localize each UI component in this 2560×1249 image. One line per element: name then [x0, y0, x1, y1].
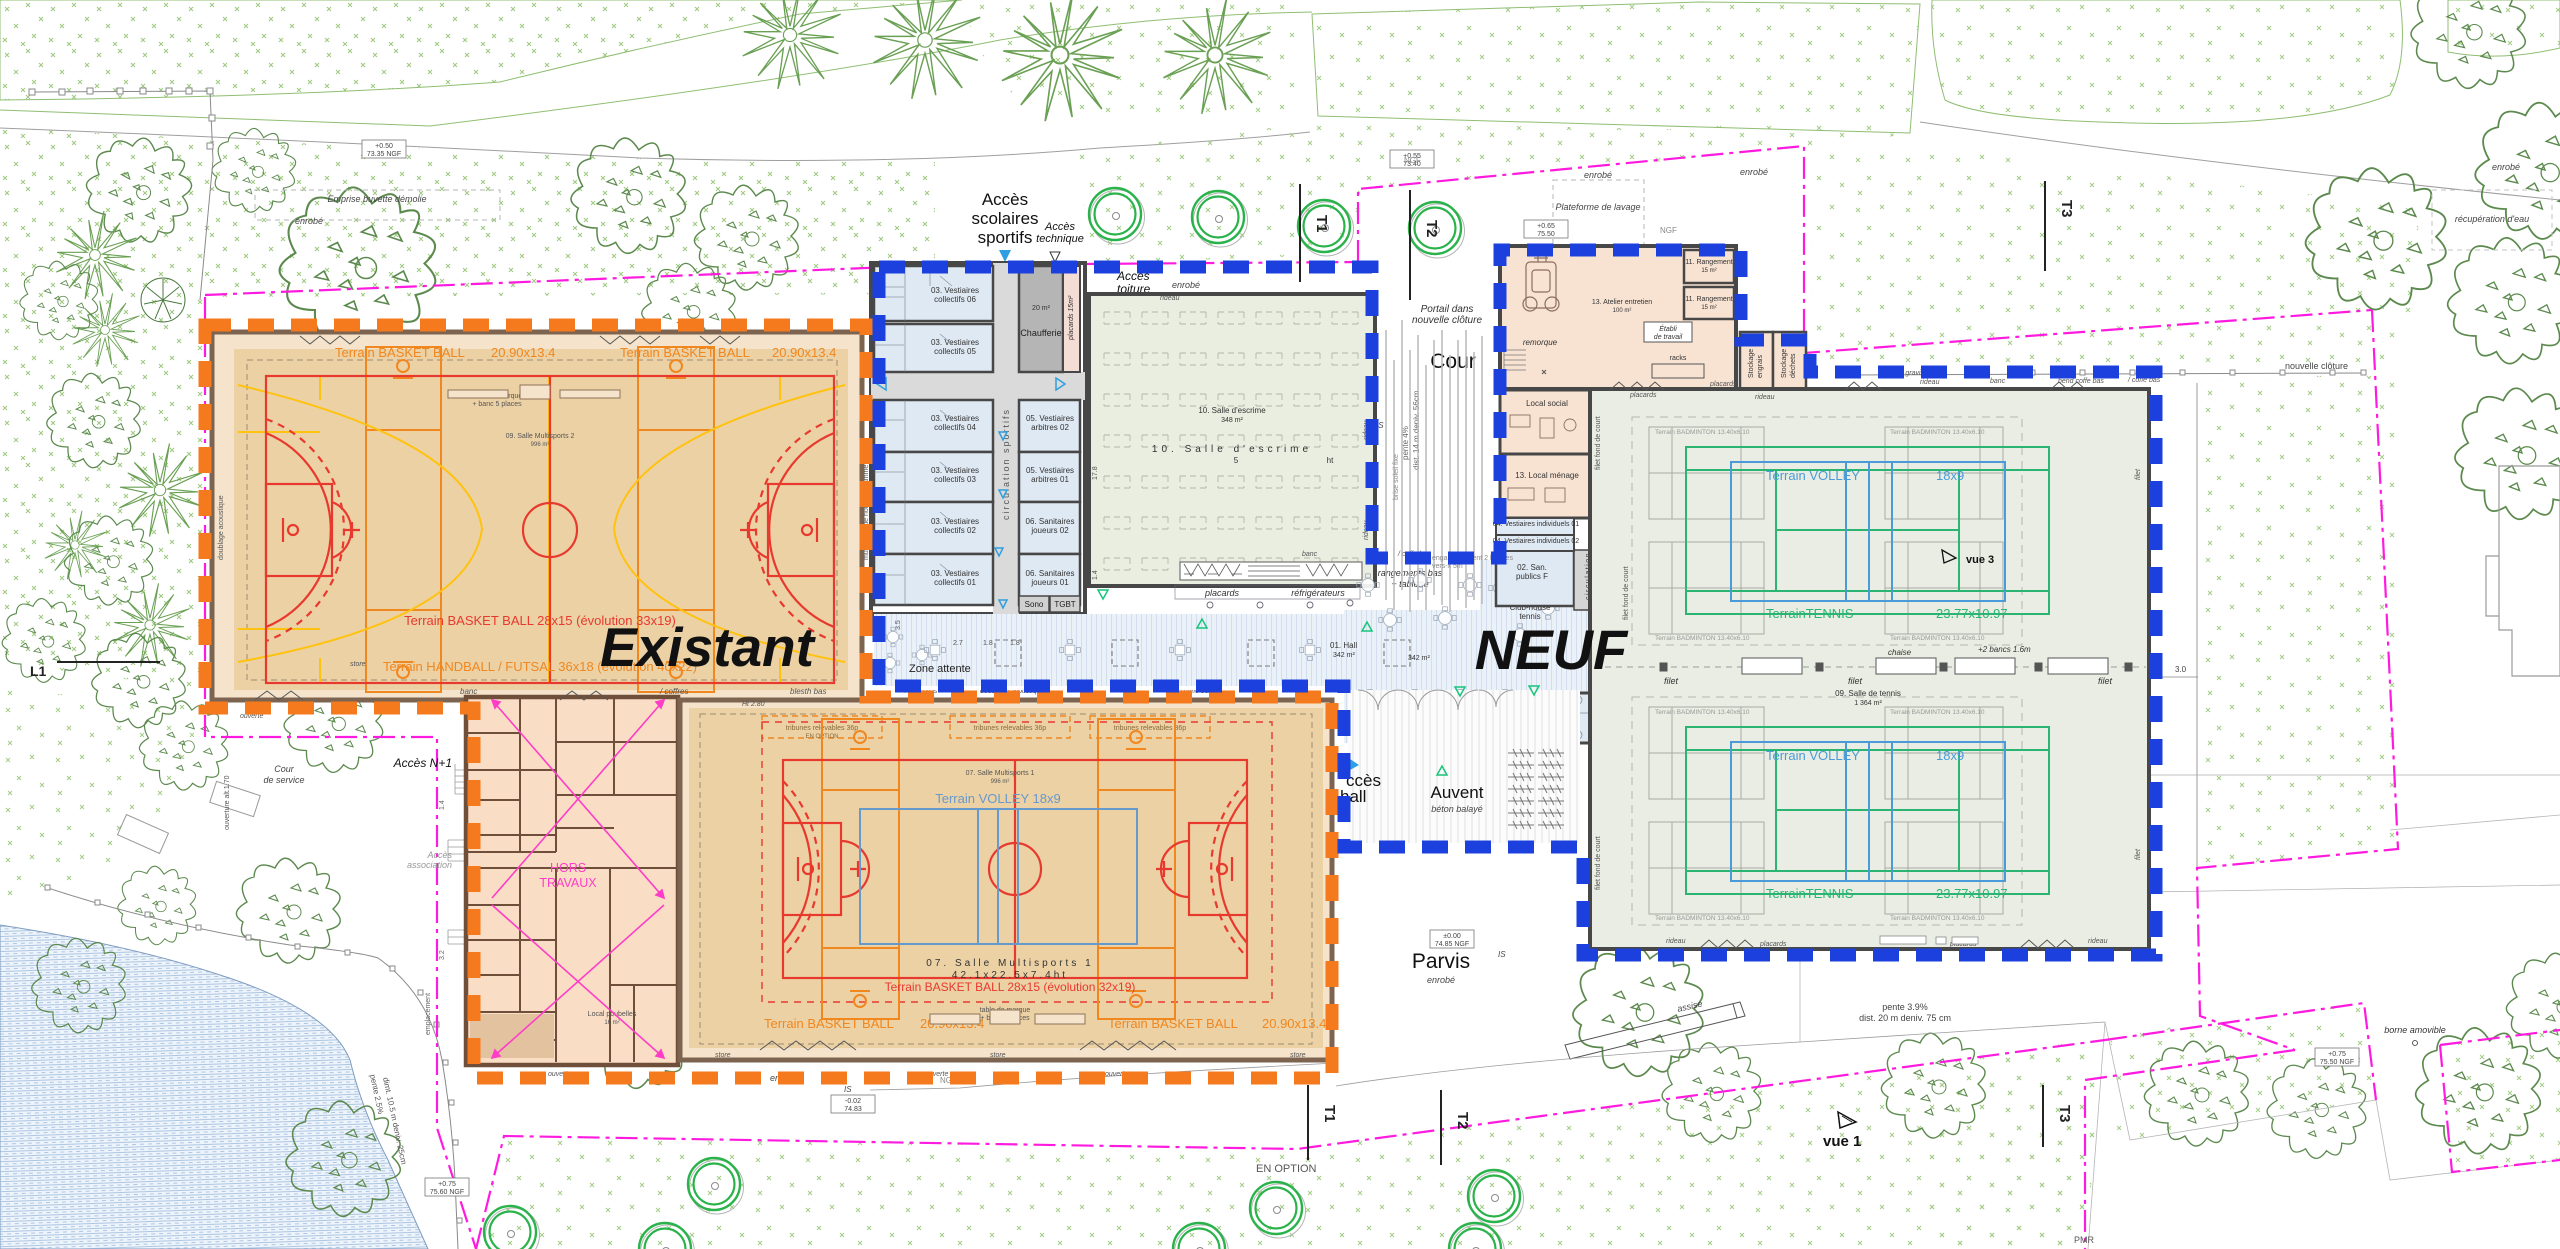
- svg-text:3.2: 3.2: [439, 950, 446, 960]
- svg-text:996 m²: 996 m²: [991, 779, 1010, 785]
- svg-text:PMR: PMR: [2074, 1235, 2095, 1245]
- svg-text:de travail: de travail: [1654, 334, 1683, 341]
- svg-text:Accès N+1: Accès N+1: [393, 756, 452, 770]
- svg-text:HORS: HORS: [550, 861, 586, 875]
- svg-text:17.8: 17.8: [1092, 466, 1099, 480]
- svg-text:enrobé: enrobé: [1740, 167, 1768, 177]
- svg-text:03. Vestiaires: 03. Vestiaires: [931, 517, 979, 526]
- svg-text:récupération d'eau: récupération d'eau: [2455, 214, 2529, 224]
- svg-text:74.85 NGF: 74.85 NGF: [1435, 941, 1469, 948]
- svg-text:TerrainTENNIS: TerrainTENNIS: [1766, 606, 1854, 621]
- svg-text:NGF: NGF: [1660, 226, 1677, 235]
- svg-text:+0.65: +0.65: [1537, 223, 1555, 230]
- svg-text:Terrain BADMINTON 13.40x6.10: Terrain BADMINTON 13.40x6.10: [1890, 429, 1985, 436]
- svg-text:T1: T1: [1313, 215, 1330, 233]
- svg-text:banc: banc: [460, 687, 477, 696]
- svg-text:996 m²: 996 m²: [531, 442, 550, 448]
- svg-text:+0.75: +0.75: [438, 1181, 456, 1188]
- svg-text:Terrain BADMINTON 13.40x6.10: Terrain BADMINTON 13.40x6.10: [1655, 709, 1750, 716]
- svg-text:18x9: 18x9: [1936, 748, 1964, 763]
- svg-text:filet: filet: [2098, 676, 2113, 686]
- svg-text:Terrain BADMINTON 13.40x6.10: Terrain BADMINTON 13.40x6.10: [1655, 915, 1750, 922]
- svg-text:15 m²: 15 m²: [1701, 268, 1716, 274]
- svg-text:20.90x13.4: 20.90x13.4: [1262, 1016, 1326, 1031]
- svg-text:Accès: Accès: [1044, 221, 1075, 233]
- svg-text:Terrain BADMINTON 13.40x6.10: Terrain BADMINTON 13.40x6.10: [1890, 709, 1985, 716]
- svg-text:enrobé: enrobé: [1427, 975, 1455, 985]
- svg-text:15 m²: 15 m²: [1701, 305, 1716, 311]
- svg-text:75.50 NGF: 75.50 NGF: [2320, 1059, 2354, 1066]
- svg-text:09. Salle Multisports 2: 09. Salle Multisports 2: [506, 433, 575, 440]
- svg-text:75.60 NGF: 75.60 NGF: [430, 1189, 464, 1196]
- svg-text:banc: banc: [1990, 378, 2006, 385]
- svg-text:Stockage: Stockage: [1748, 349, 1755, 378]
- svg-text:1 364 m²: 1 364 m²: [1854, 700, 1882, 707]
- svg-text:rideau: rideau: [2088, 938, 2108, 945]
- svg-text:store: store: [1290, 1052, 1306, 1059]
- svg-text:doublage acoustique: doublage acoustique: [218, 495, 225, 560]
- svg-text:bend coffe bas: bend coffe bas: [2058, 378, 2104, 385]
- svg-text:store: store: [990, 1052, 1006, 1059]
- svg-text:06. Sanitaires: 06. Sanitaires: [1026, 569, 1075, 578]
- svg-text:placards: placards: [1629, 392, 1657, 399]
- svg-text:±0.00: ±0.00: [1443, 933, 1461, 940]
- svg-text:3.0: 3.0: [2175, 665, 2187, 674]
- svg-text:/ coffres: / coffres: [659, 687, 688, 696]
- svg-text:Local social: Local social: [1526, 399, 1568, 408]
- svg-text:1.8: 1.8: [983, 640, 993, 647]
- svg-text:borne amovible: borne amovible: [2384, 1025, 2446, 1035]
- svg-text:-0.02: -0.02: [845, 1098, 861, 1105]
- svg-text:rideau: rideau: [1920, 379, 1940, 386]
- svg-text:Terrain BASKET BALL: Terrain BASKET BALL: [620, 345, 750, 360]
- svg-text:filet: filet: [2135, 468, 2142, 480]
- svg-text:Terrain BADMINTON 13.40x6.10: Terrain BADMINTON 13.40x6.10: [1890, 915, 1985, 922]
- svg-text:collectifs 01: collectifs 01: [934, 578, 976, 587]
- svg-text:filet: filet: [1664, 676, 1679, 686]
- svg-text:ouverture alt.1.70: ouverture alt.1.70: [224, 775, 231, 830]
- svg-text:T2: T2: [1423, 220, 1440, 238]
- svg-text:enrobé: enrobé: [1172, 280, 1200, 290]
- svg-text:1.8: 1.8: [1010, 640, 1020, 647]
- svg-text:02. San.: 02. San.: [1517, 563, 1547, 572]
- svg-text:13. Local ménage: 13. Local ménage: [1515, 471, 1579, 480]
- svg-text:Terrain BADMINTON 13.40x6.10: Terrain BADMINTON 13.40x6.10: [1655, 635, 1750, 642]
- svg-text:5: 5: [1234, 456, 1239, 465]
- svg-text:nouvelle clôture: nouvelle clôture: [1412, 315, 1482, 326]
- svg-text:placards 15m²: placards 15m²: [1068, 295, 1075, 341]
- svg-text:arbitres 02: arbitres 02: [1031, 423, 1069, 432]
- svg-text:+2 bancs 1.6m: +2 bancs 1.6m: [1978, 645, 2031, 654]
- svg-text:Auvent: Auvent: [1431, 783, 1484, 802]
- svg-text:circulation sportifs: circulation sportifs: [1001, 408, 1011, 520]
- svg-text:Terrain VOLLEY: Terrain VOLLEY: [1766, 468, 1860, 483]
- svg-text:Accès: Accès: [426, 850, 452, 860]
- svg-text:collectifs 05: collectifs 05: [934, 347, 976, 356]
- svg-text:sportifs: sportifs: [978, 228, 1033, 247]
- svg-text:filet fond de court: filet fond de court: [1595, 416, 1602, 470]
- svg-text:arbitres 01: arbitres 01: [1031, 475, 1069, 484]
- svg-text:Ht 2.80: Ht 2.80: [742, 701, 765, 708]
- svg-text:23.77x10.97: 23.77x10.97: [1936, 606, 2008, 621]
- svg-text:06. Sanitaires: 06. Sanitaires: [1026, 517, 1075, 526]
- svg-text:03. Vestiaires: 03. Vestiaires: [931, 414, 979, 423]
- svg-text:publics F: publics F: [1516, 572, 1548, 581]
- svg-text:chaise: chaise: [1888, 648, 1912, 657]
- svg-text:joueurs 02: joueurs 02: [1030, 526, 1069, 535]
- svg-text:collectifs 04: collectifs 04: [934, 423, 976, 432]
- svg-text:Terrain VOLLEY 18x9: Terrain VOLLEY 18x9: [935, 791, 1061, 806]
- svg-text:béton balayé: béton balayé: [1431, 804, 1483, 814]
- svg-text:TRAVAUX: TRAVAUX: [539, 876, 597, 890]
- svg-text:TerrainTENNIS: TerrainTENNIS: [1766, 886, 1854, 901]
- svg-text:engrais: engrais: [1757, 355, 1764, 378]
- svg-text:T3: T3: [2056, 1105, 2073, 1123]
- svg-text:1.4: 1.4: [439, 800, 446, 810]
- svg-text:enrobé: enrobé: [2492, 162, 2520, 172]
- svg-text:déchets: déchets: [1790, 353, 1797, 378]
- svg-text:23.77x10.97: 23.77x10.97: [1936, 886, 2008, 901]
- svg-text:3.5: 3.5: [895, 620, 902, 630]
- svg-text:L1: L1: [30, 663, 47, 679]
- svg-text:05. Vestiaires: 05. Vestiaires: [1026, 414, 1074, 423]
- svg-text:10. Salle d'escrime: 10. Salle d'escrime: [1152, 444, 1312, 455]
- svg-text:Terrain BASKET BALL 28x15 (évo: Terrain BASKET BALL 28x15 (évolution 32x…: [885, 980, 1136, 994]
- svg-text:Cour: Cour: [1430, 350, 1476, 373]
- svg-text:NGF: NGF: [1404, 156, 1421, 165]
- svg-text:collectifs 06: collectifs 06: [934, 295, 976, 304]
- svg-text:pente 3.9%: pente 3.9%: [1882, 1002, 1928, 1012]
- svg-text:Terrain VOLLEY: Terrain VOLLEY: [1766, 748, 1860, 763]
- svg-text:enrobé: enrobé: [295, 216, 323, 226]
- svg-text:05. Vestiaires: 05. Vestiaires: [1026, 466, 1074, 475]
- svg-text:348 m²: 348 m²: [1221, 417, 1243, 424]
- svg-text:10. Salle d'escrime: 10. Salle d'escrime: [1198, 406, 1266, 415]
- svg-text:emplacement: emplacement: [425, 993, 432, 1035]
- svg-text:placards: placards: [1759, 941, 1787, 948]
- svg-text:Parvis: Parvis: [1412, 950, 1470, 973]
- svg-text:NEUF: NEUF: [1475, 618, 1629, 681]
- svg-text:store: store: [350, 661, 366, 668]
- svg-text:Accès: Accès: [982, 190, 1028, 209]
- svg-text:20 m²: 20 m²: [1032, 305, 1051, 312]
- svg-text:73.35 NGF: 73.35 NGF: [367, 151, 401, 158]
- svg-text:75.50: 75.50: [1537, 231, 1555, 238]
- svg-text:03. Vestiaires: 03. Vestiaires: [931, 286, 979, 295]
- svg-text:Terrain BASKET BALL: Terrain BASKET BALL: [335, 345, 465, 360]
- svg-text:dist. 14 m deniv. 56cm: dist. 14 m deniv. 56cm: [1412, 390, 1421, 470]
- svg-text:20.90x13.4: 20.90x13.4: [491, 345, 555, 360]
- svg-text:enrobé: enrobé: [1584, 170, 1612, 180]
- svg-text:342 m²: 342 m²: [1333, 652, 1355, 659]
- svg-text:Terrain BASKET BALL: Terrain BASKET BALL: [1108, 1016, 1238, 1031]
- svg-text:filet fond de court: filet fond de court: [1595, 836, 1602, 890]
- svg-text:EN OPTION: EN OPTION: [1256, 1163, 1317, 1175]
- svg-text:01. Hall: 01. Hall: [1330, 641, 1357, 650]
- svg-text:Terrain BASKET BALL: Terrain BASKET BALL: [764, 1016, 894, 1031]
- svg-text:100 m²: 100 m²: [1613, 308, 1632, 314]
- svg-text:Établi: Établi: [1659, 324, 1677, 333]
- svg-text:IS: IS: [1498, 950, 1506, 959]
- svg-text:Cour: Cour: [274, 764, 295, 774]
- svg-text:placards: placards: [1709, 381, 1737, 388]
- svg-text:Stockage: Stockage: [1781, 349, 1788, 378]
- svg-text:joueurs 01: joueurs 01: [1030, 578, 1069, 587]
- svg-text:342 m²: 342 m²: [1408, 655, 1430, 662]
- svg-text:rideau: rideau: [1666, 938, 1686, 945]
- svg-text:07. Salle Multisports 1: 07. Salle Multisports 1: [926, 958, 1093, 969]
- svg-text:07. Salle Multisports 1: 07. Salle Multisports 1: [966, 770, 1035, 777]
- svg-text:+0.75: +0.75: [2328, 1051, 2346, 1058]
- svg-text:scolaires: scolaires: [971, 209, 1038, 228]
- svg-text:Zone attente: Zone attente: [909, 663, 971, 675]
- svg-text:Chaufferie: Chaufferie: [1020, 328, 1061, 338]
- svg-text:20.90x13.4: 20.90x13.4: [772, 345, 836, 360]
- svg-text:+ banc 5 places: + banc 5 places: [472, 401, 522, 408]
- svg-text:Emprise buvette démolie: Emprise buvette démolie: [327, 194, 426, 204]
- svg-text:store: store: [715, 1052, 731, 1059]
- svg-text:74.83: 74.83: [844, 1106, 862, 1113]
- svg-text:rideau: rideau: [1755, 394, 1775, 401]
- svg-text:Portail dans: Portail dans: [1421, 304, 1474, 315]
- svg-text:ht: ht: [1327, 456, 1334, 465]
- svg-text:nouvelle clôture: nouvelle clôture: [2285, 361, 2348, 371]
- svg-text:Terrain BADMINTON 13.40x6.10: Terrain BADMINTON 13.40x6.10: [1890, 635, 1985, 642]
- svg-text:racks: racks: [1670, 355, 1687, 362]
- svg-text:03. Vestiaires: 03. Vestiaires: [931, 569, 979, 578]
- svg-text:vue 3: vue 3: [1966, 554, 1994, 566]
- svg-text:collectifs 03: collectifs 03: [934, 475, 976, 484]
- svg-text:18x9: 18x9: [1936, 468, 1964, 483]
- svg-text:placards: placards: [1204, 588, 1240, 598]
- svg-text:11. Rangement: 11. Rangement: [1685, 296, 1732, 303]
- svg-text:IS: IS: [844, 1085, 852, 1094]
- svg-text:16 m²: 16 m²: [604, 1020, 619, 1026]
- svg-text:tribunes relevables 36p: tribunes relevables 36p: [974, 725, 1046, 732]
- svg-text:rideau: rideau: [1160, 295, 1180, 302]
- svg-text:Sono: Sono: [1025, 600, 1044, 609]
- svg-text:Existant: Existant: [600, 616, 817, 678]
- svg-text:03. Vestiaires: 03. Vestiaires: [931, 338, 979, 347]
- svg-text:remorque: remorque: [1523, 338, 1558, 347]
- svg-text:banc: banc: [1302, 551, 1318, 558]
- svg-text:filet: filet: [1848, 676, 1863, 686]
- svg-text:collectifs 02: collectifs 02: [934, 526, 976, 535]
- svg-text:T3: T3: [2058, 200, 2075, 218]
- svg-text:T1: T1: [1321, 1105, 1338, 1123]
- svg-text:Plateforme de lavage: Plateforme de lavage: [1555, 202, 1640, 212]
- svg-text:13. Atelier entretien: 13. Atelier entretien: [1592, 299, 1652, 306]
- svg-text:de service: de service: [263, 775, 304, 785]
- svg-text:technique: technique: [1036, 233, 1084, 245]
- svg-text:filet fond de court: filet fond de court: [1623, 566, 1630, 620]
- svg-text:Terrain BADMINTON 13.40x6.10: Terrain BADMINTON 13.40x6.10: [1655, 429, 1750, 436]
- svg-text:11. Rangement: 11. Rangement: [1685, 259, 1732, 266]
- svg-text:brise soleil fixe: brise soleil fixe: [1393, 454, 1400, 500]
- svg-text:association: association: [407, 860, 452, 870]
- svg-text:filet: filet: [2135, 848, 2142, 860]
- svg-text:+0.50: +0.50: [375, 143, 393, 150]
- svg-text:2.7: 2.7: [953, 640, 963, 647]
- svg-text:dist. 20 m deniv. 75 cm: dist. 20 m deniv. 75 cm: [1859, 1013, 1951, 1023]
- svg-text:vue 1: vue 1: [1823, 1133, 1861, 1150]
- svg-text:1.4: 1.4: [1092, 570, 1099, 580]
- svg-text:blesth bas: blesth bas: [790, 687, 826, 696]
- svg-text:03. Vestiaires: 03. Vestiaires: [931, 466, 979, 475]
- svg-text:réfrigérateurs: réfrigérateurs: [1291, 588, 1345, 598]
- svg-text:TGBT: TGBT: [1054, 600, 1075, 609]
- svg-text:T2: T2: [1454, 1112, 1471, 1130]
